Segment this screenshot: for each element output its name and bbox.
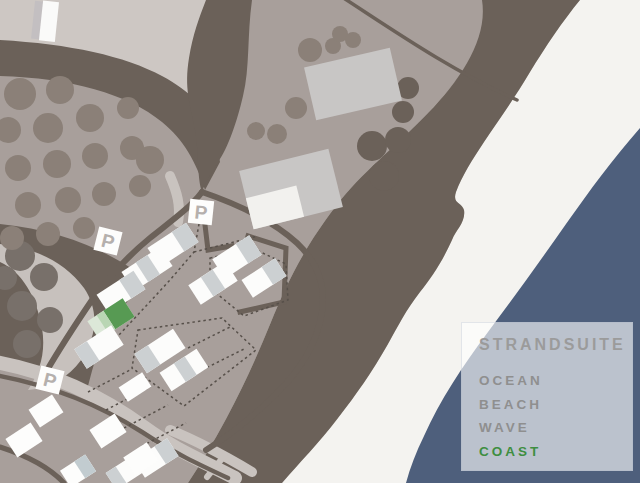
building-small: [31, 0, 59, 42]
parking-p-icon: P: [194, 201, 209, 223]
site-plan-stage: P P P STRANDSUITE OCEAN BEACH WAVE COAST: [0, 0, 640, 483]
legend-item-beach[interactable]: BEACH: [479, 393, 632, 417]
legend-item-wave[interactable]: WAVE: [479, 416, 632, 440]
legend-panel: STRANDSUITE OCEAN BEACH WAVE COAST: [461, 322, 633, 471]
legend-item-ocean[interactable]: OCEAN: [479, 369, 632, 393]
parking-sign: P: [188, 199, 214, 225]
legend-title: STRANDSUITE: [479, 336, 632, 354]
legend-item-coast[interactable]: COAST: [479, 440, 632, 464]
